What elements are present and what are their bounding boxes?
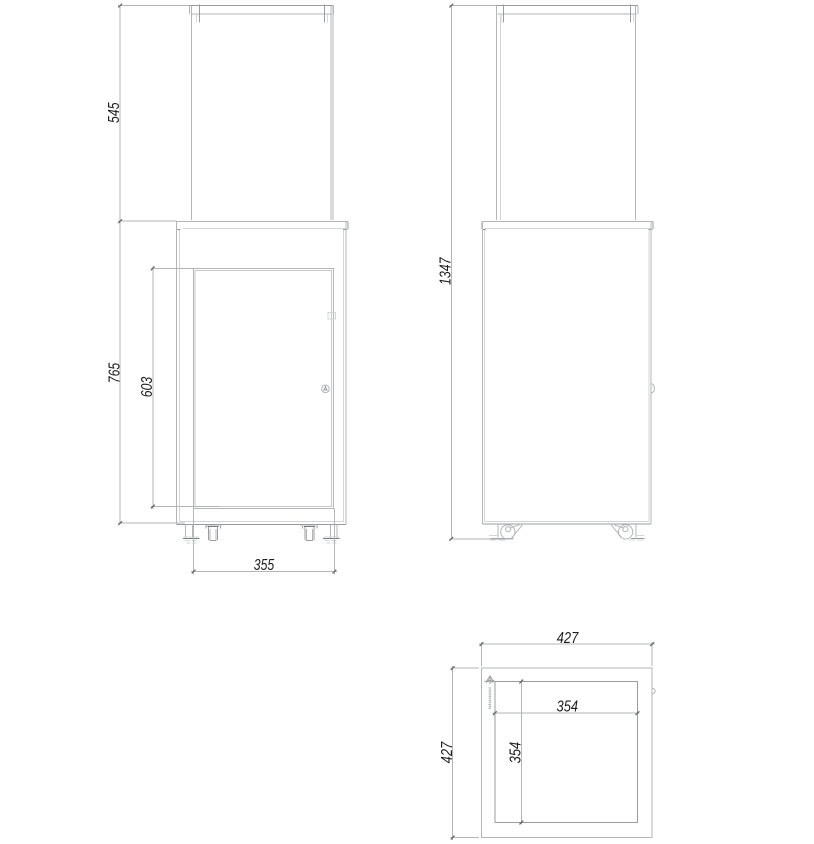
svg-text:427: 427 — [439, 741, 456, 764]
svg-text:354: 354 — [557, 699, 579, 716]
svg-text:354: 354 — [508, 742, 525, 764]
svg-text:355: 355 — [254, 557, 275, 574]
svg-text:427: 427 — [557, 630, 580, 647]
svg-text:603: 603 — [139, 376, 156, 397]
svg-text:1347: 1347 — [438, 256, 455, 285]
svg-text:765: 765 — [107, 362, 124, 383]
svg-text:545: 545 — [106, 102, 123, 123]
